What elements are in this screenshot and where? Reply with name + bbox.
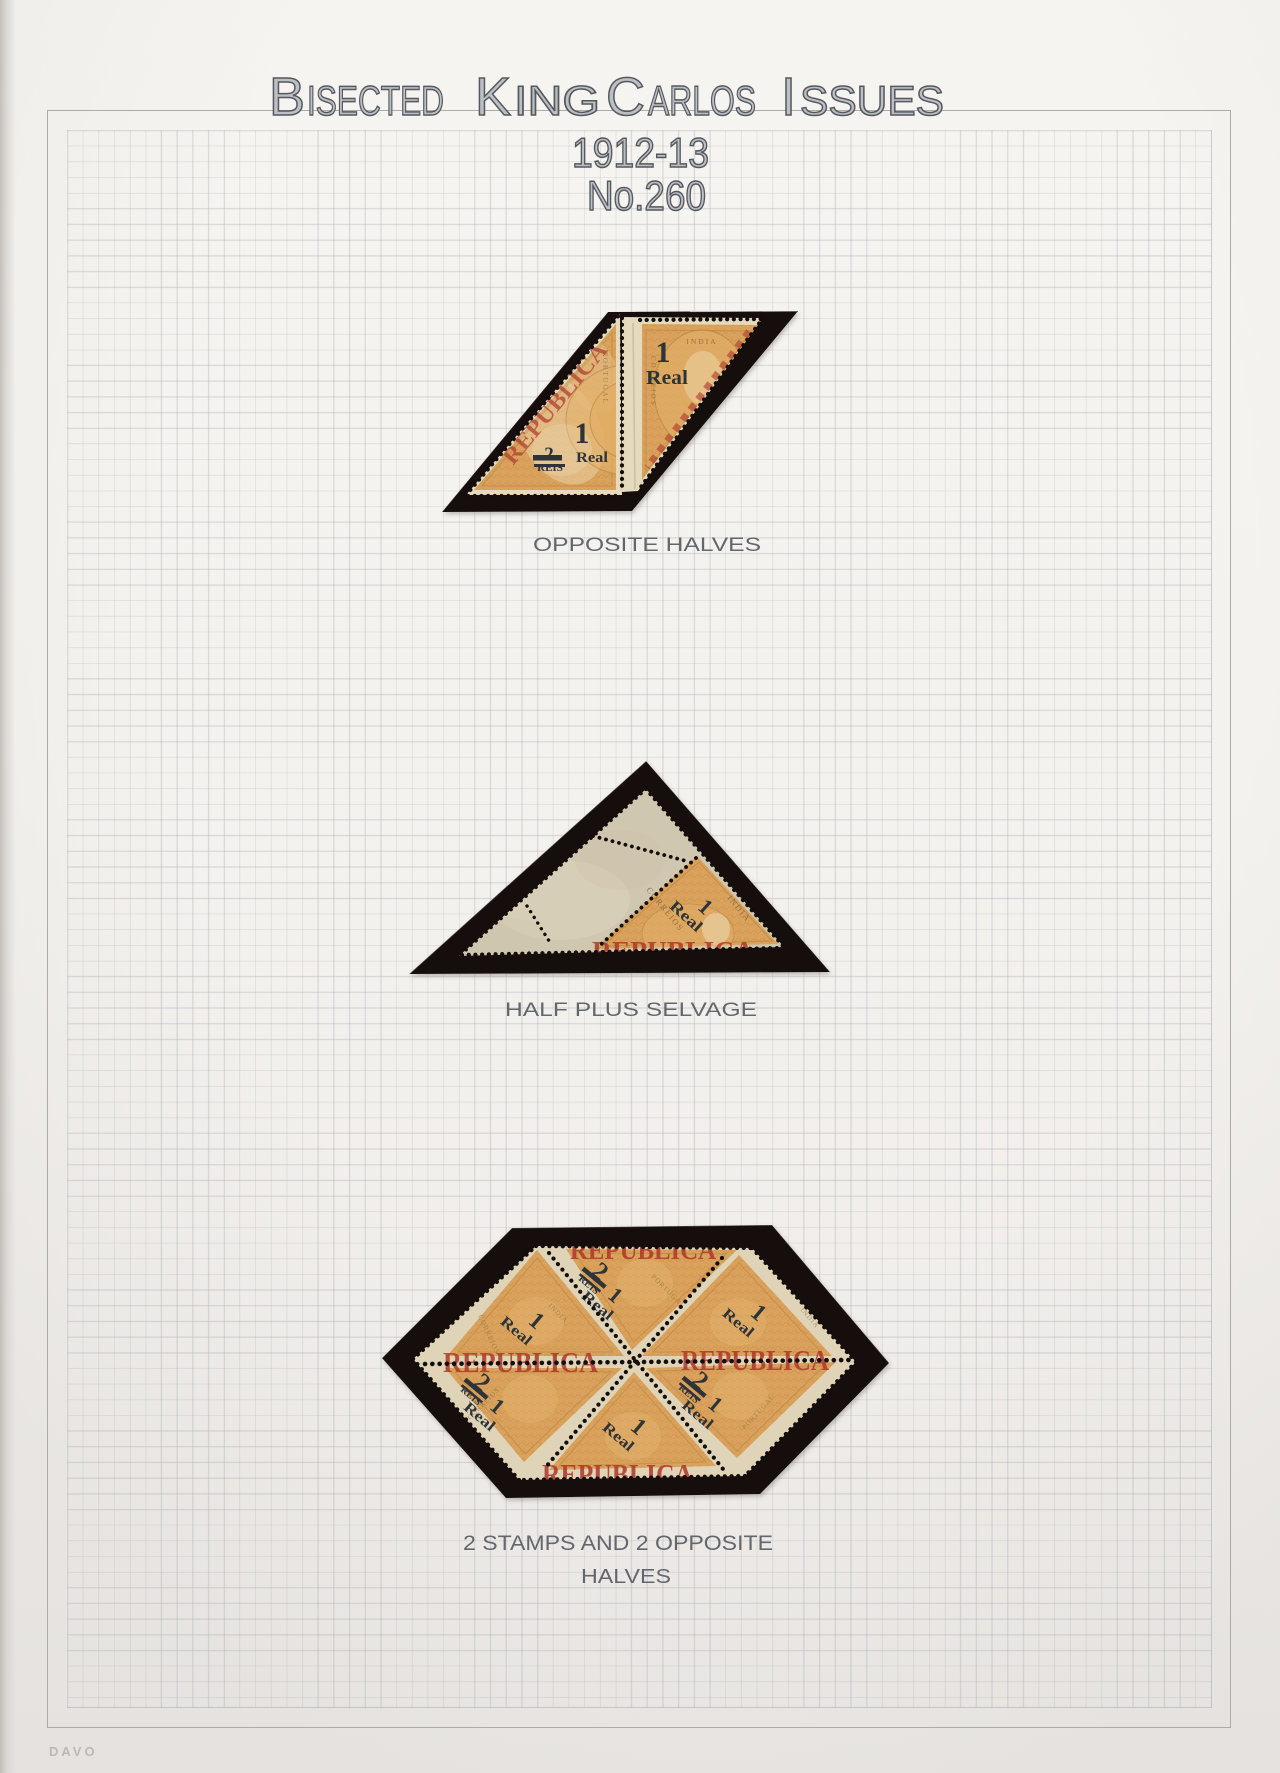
svg-text:Real: Real [576, 450, 608, 466]
svg-text:1912-13: 1912-13 [572, 129, 709, 176]
svg-text:HALVES: HALVES [581, 1566, 671, 1588]
svg-text:ARLOS: ARLOS [648, 77, 756, 124]
svg-text:1: 1 [656, 336, 671, 369]
svg-text:ISECTED: ISECTED [307, 77, 444, 124]
svg-text:K: K [475, 67, 511, 127]
svg-text:1: 1 [575, 417, 590, 450]
svg-text:2 STAMPS AND 2 OPPOSITE: 2 STAMPS AND 2 OPPOSITE [463, 1532, 773, 1555]
svg-text:C: C [606, 67, 645, 127]
svg-text:No.260: No.260 [587, 172, 706, 219]
svg-text:INDIA: INDIA [686, 337, 717, 346]
svg-text:Real: Real [646, 367, 688, 389]
svg-text:OPPOSITE HALVES: OPPOSITE HALVES [533, 535, 761, 556]
svg-text:B: B [269, 67, 305, 127]
svg-text:I: I [781, 67, 796, 127]
svg-text:ING: ING [514, 77, 600, 124]
svg-text:HALF PLUS SELVAGE: HALF PLUS SELVAGE [505, 1000, 757, 1021]
svg-text:SSUES: SSUES [800, 77, 944, 124]
svg-text:REIS: REIS [537, 462, 563, 474]
